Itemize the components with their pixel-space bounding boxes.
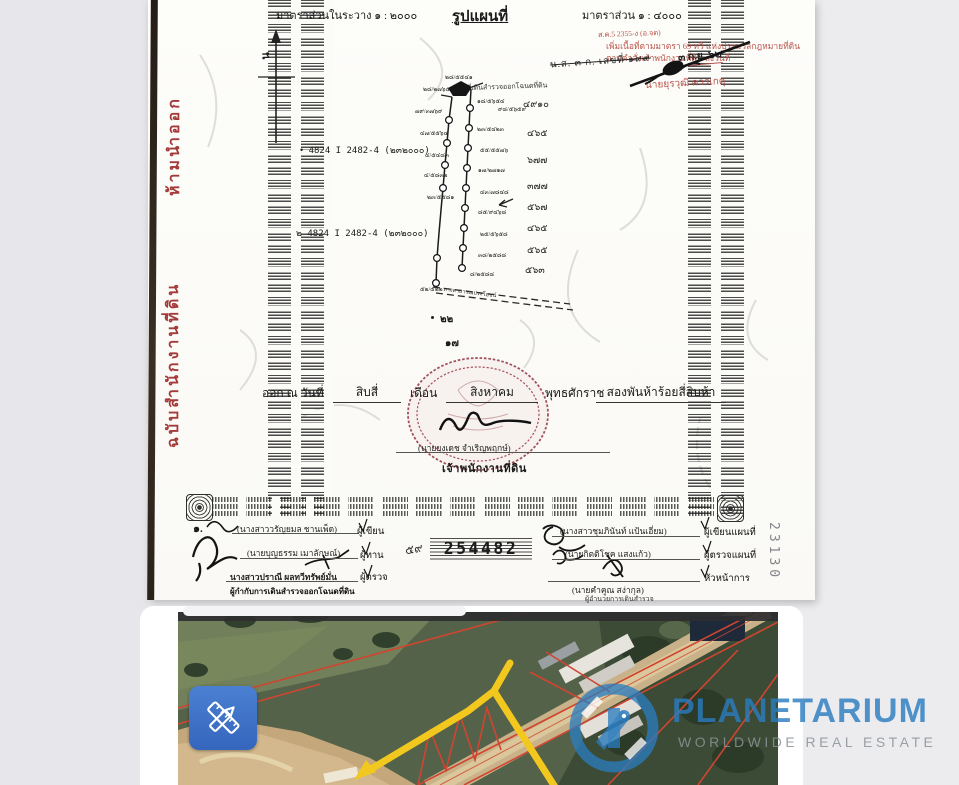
- side-label-top: ห้ามนำออก: [162, 8, 187, 196]
- sign-left-name-1: (นางสาววรัญยมล ชานเพ็ด): [237, 522, 337, 536]
- point-dot: [431, 316, 434, 319]
- serial-prefix: ๕๙: [403, 539, 424, 561]
- sign-right-name-1: (นางสาวชุมภินันท์ แป้นเอี่ยม): [560, 524, 667, 538]
- screenshot-canvas: ห้ามนำออก ฉบับสำนักงานที่ดิน มาตราส่วนใน…: [0, 0, 959, 785]
- scale-right-label: มาตราส่วน ๑ : ๔๐๐๐: [582, 6, 682, 24]
- issue-prefix: ออก ณ วันที่: [262, 384, 324, 403]
- brand-watermark: PLANETARIUM WORLDWIDE REAL ESTATE: [566, 678, 956, 782]
- sign-left-name-2: (นายบุญธรรม เมาลักษณ์): [247, 546, 340, 560]
- right-footer-title: ผู้อำนวยการเดินสำรวจ: [585, 594, 654, 605]
- globe-icon: [566, 680, 662, 776]
- issue-month-word: เดือน: [410, 384, 437, 403]
- seal-officer-role: เจ้าพนักงานที่ดิน: [442, 459, 527, 477]
- road-label: ทางสาธารณประโยชน์: [443, 286, 497, 300]
- north-letter: น: [256, 52, 274, 60]
- sign-right-role-1: ผู้เขียนแผนที่: [704, 525, 756, 540]
- serial-number-band: 254482: [430, 538, 532, 560]
- photo-top-strip: [183, 606, 466, 616]
- ruler-pencil-icon: [201, 696, 245, 740]
- edit-photo-button[interactable]: [189, 686, 257, 750]
- side-label-bottom: ฉบับสำนักงานที่ดิน: [161, 202, 186, 448]
- scale-left-label: มาตราส่วนในระวาง ๑ : ๒๐๐๐: [276, 6, 417, 24]
- sign-right-role-2: ผู้ตรวจแผนที่: [704, 548, 756, 563]
- sign-left-prefix: ๑.: [193, 519, 203, 537]
- serial-number: 254482: [444, 539, 519, 558]
- survey-label-layer: ๒๘/๒๗๖๕ ๒๘/๕๕๔๑ ๑๘/๕๖๕๔ ๙๘/๕๖๕๙ ๗๙/๓๗๖๙ …: [255, 25, 620, 315]
- sign-right-name-2: (นายกิตติโชค แสงแก้ว): [565, 547, 651, 561]
- brand-tagline: WORLDWIDE REAL ESTATE: [678, 734, 936, 750]
- parcel-number-below-2: ๑๗: [445, 336, 459, 351]
- issue-day: สิบสี่: [333, 383, 401, 403]
- issue-year: สองพันห้าร้อยสี่สิบห้า: [596, 383, 726, 403]
- sign-left-role-1: ผู้เขียน: [357, 524, 384, 539]
- seal-officer-name: (นายยงเดช จำเริญพฤกษ์): [418, 441, 511, 455]
- border-ornament-bottom: [212, 497, 716, 516]
- parcel-number-below-1: ๒๒: [440, 312, 453, 327]
- issue-month: สิงหาคม: [446, 383, 538, 403]
- brand-name: PLANETARIUM: [672, 692, 928, 731]
- sign-left-role-3: ผู้ตรวจ: [360, 570, 388, 585]
- sign-right-role-3: หัวหน้าการ: [704, 571, 750, 586]
- sign-left-role-2: ผู้ทาน: [360, 548, 384, 563]
- sign-left-name-3: นางสาวปราณี ผลทวีทรัพย์มั่น: [230, 570, 337, 584]
- margin-number: 23130: [766, 522, 781, 581]
- left-footer-title: ผู้กำกับการเดินสำรวจออกโฉนดที่ดิน: [230, 585, 355, 598]
